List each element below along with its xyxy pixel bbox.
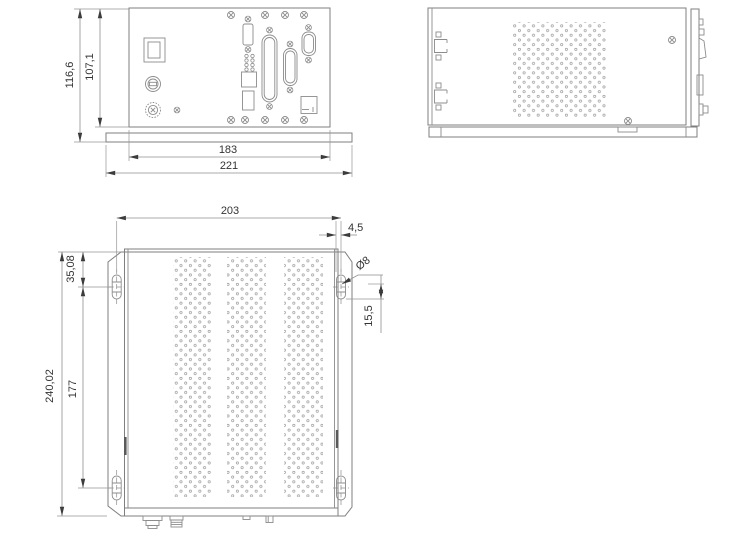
diameter-leader-line bbox=[342, 275, 383, 284]
dim-label-front-panel-width: 183 bbox=[219, 144, 237, 156]
dim-label-hole-edge-offset: 4,5 bbox=[348, 222, 363, 234]
front-view: 116,6 107,1 183 221 bbox=[64, 8, 352, 177]
dim-label-front-panel-height: 107,1 bbox=[84, 53, 96, 81]
din-connector-2 bbox=[170, 516, 183, 527]
vent-strip-1 bbox=[173, 257, 212, 497]
dim-label-hole-diameter: Ø8 bbox=[354, 254, 373, 272]
front-base-plate bbox=[106, 133, 352, 142]
side-round-connector-profile bbox=[703, 106, 708, 113]
rect-connector bbox=[243, 91, 255, 110]
power-connector bbox=[146, 103, 161, 118]
mounting-clip-bottom bbox=[435, 83, 448, 110]
square-connector bbox=[242, 72, 257, 87]
dim-label-front-overall-height: 116,6 bbox=[64, 62, 76, 89]
seam-mark-left bbox=[124, 437, 127, 455]
side-base-plate bbox=[429, 127, 697, 137]
side-front-panel-edge bbox=[691, 9, 699, 126]
mounting-slot-bottom-right bbox=[333, 470, 349, 506]
mounting-slot-top-left bbox=[109, 269, 125, 305]
bottom-tab bbox=[243, 516, 250, 520]
dsub-connector-medium bbox=[284, 41, 298, 93]
dim-label-hole-corner-offset: 15,5 bbox=[363, 305, 375, 326]
dim-label-hole-spacing-v: 177 bbox=[67, 380, 79, 398]
side-screw-icon bbox=[669, 37, 676, 44]
side-vent-perforation bbox=[513, 22, 607, 117]
dim-label-hole-spacing-h: 203 bbox=[221, 205, 239, 217]
mounting-slot-top-right bbox=[333, 269, 349, 305]
vent-strip-3 bbox=[284, 257, 323, 497]
fuse-holder bbox=[146, 77, 161, 92]
seam-mark-right bbox=[336, 430, 339, 448]
cover-bottom-flange bbox=[125, 508, 339, 516]
mounting-slot-bottom-left bbox=[109, 470, 125, 506]
dim-label-hole-top-offset: 35,08 bbox=[65, 255, 77, 283]
mounting-clip-top bbox=[435, 32, 448, 60]
vent-strip-2 bbox=[227, 257, 266, 497]
bottom-view: 203 4,5 Ø8 15,5 35,08 177 240,02 bbox=[44, 205, 384, 529]
dsub-connector-small bbox=[302, 25, 316, 63]
terminal-connector bbox=[243, 16, 253, 52]
bottom-connectors bbox=[143, 516, 273, 529]
side-switch-profile bbox=[699, 38, 706, 59]
din-connector-1 bbox=[143, 516, 162, 529]
rj45-connector bbox=[301, 97, 317, 114]
dim-label-bottom-overall-height: 240,02 bbox=[44, 369, 56, 403]
small-bottom-connector bbox=[266, 516, 273, 523]
enclosure-dimension-drawing: 116,6 107,1 183 221 bbox=[0, 0, 750, 534]
front-panel-outline bbox=[129, 8, 330, 127]
side-connector-profile bbox=[697, 75, 703, 95]
side-bottom-screw-icon bbox=[625, 118, 632, 125]
panel-screws-bottom bbox=[228, 117, 308, 124]
technical-drawing-page: 116,6 107,1 183 221 bbox=[0, 0, 750, 534]
ground-screw-icon bbox=[174, 107, 180, 113]
dsub-connector-large bbox=[262, 27, 277, 109]
dim-label-front-overall-width: 221 bbox=[220, 160, 238, 172]
side-view bbox=[428, 8, 708, 137]
panel-screws-top bbox=[228, 12, 308, 19]
led-indicators bbox=[245, 54, 254, 71]
power-switch bbox=[144, 38, 165, 62]
